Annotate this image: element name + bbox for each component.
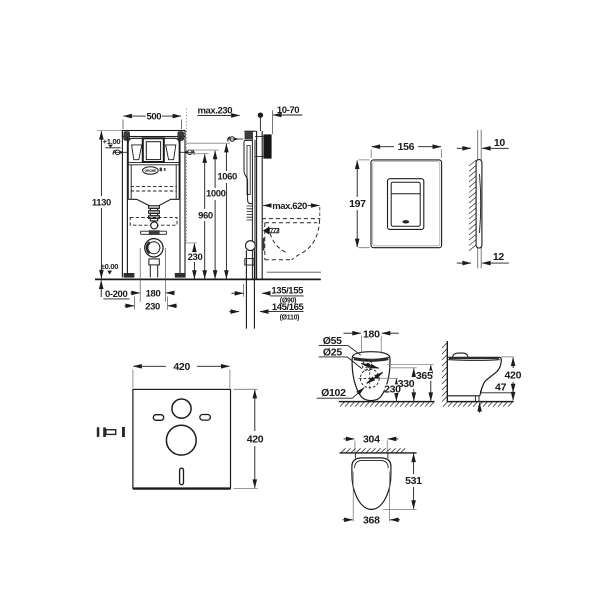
svg-text:±0.00: ±0.00 [101, 262, 119, 271]
svg-text:156: 156 [398, 141, 415, 153]
svg-text:max.620: max.620 [272, 201, 307, 212]
svg-text:max.230: max.230 [197, 105, 232, 116]
svg-text:10: 10 [494, 137, 506, 149]
svg-text:47: 47 [495, 381, 507, 393]
svg-text:420: 420 [247, 433, 264, 445]
svg-text:Ø102: Ø102 [321, 387, 346, 399]
svg-text:960: 960 [198, 210, 213, 221]
svg-text:230: 230 [188, 252, 203, 263]
svg-text:180: 180 [146, 288, 161, 299]
svg-text:1000: 1000 [206, 188, 226, 199]
svg-text:420: 420 [504, 370, 521, 382]
svg-text:531: 531 [405, 475, 422, 487]
svg-text:(Ø110): (Ø110) [280, 315, 300, 322]
svg-text:304: 304 [363, 434, 380, 446]
svg-text:10-70: 10-70 [277, 105, 299, 116]
svg-text:330: 330 [398, 378, 415, 390]
svg-text:230: 230 [145, 301, 160, 312]
svg-text:1130: 1130 [92, 198, 111, 209]
svg-text:500: 500 [146, 112, 161, 123]
svg-text:420: 420 [173, 361, 190, 373]
svg-text:135/155: 135/155 [271, 286, 304, 297]
svg-text:12: 12 [493, 251, 505, 263]
svg-text:197: 197 [349, 198, 366, 210]
svg-text:GROHE: GROHE [145, 169, 157, 173]
svg-text:145/165: 145/165 [272, 302, 305, 313]
svg-text:365: 365 [416, 370, 433, 382]
svg-text:368: 368 [363, 514, 380, 526]
svg-text:1060: 1060 [217, 171, 237, 182]
svg-text:180: 180 [363, 329, 380, 341]
